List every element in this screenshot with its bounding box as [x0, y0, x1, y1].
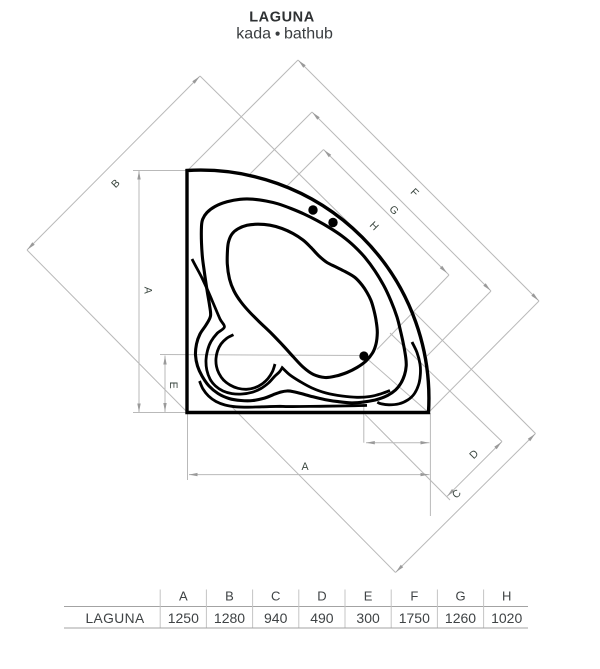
svg-text:H: H — [367, 219, 381, 233]
svg-text:E: E — [364, 588, 373, 603]
svg-text:F: F — [410, 588, 418, 603]
svg-text:D: D — [467, 447, 481, 461]
svg-text:1260: 1260 — [445, 610, 476, 626]
svg-text:C: C — [271, 588, 280, 603]
svg-text:LAGUNA: LAGUNA — [85, 611, 145, 626]
svg-text:B: B — [109, 177, 122, 190]
svg-text:1750: 1750 — [399, 610, 430, 626]
svg-text:940: 940 — [264, 610, 288, 626]
svg-text:300: 300 — [356, 610, 380, 626]
svg-text:G: G — [455, 588, 465, 603]
svg-text:1280: 1280 — [214, 610, 245, 626]
svg-text:F: F — [408, 186, 421, 199]
svg-text:H: H — [502, 588, 511, 603]
svg-text:D: D — [317, 588, 326, 603]
svg-text:1250: 1250 — [168, 610, 199, 626]
svg-text:A: A — [141, 287, 153, 295]
svg-text:bathub: bathub — [284, 26, 333, 43]
svg-text:490: 490 — [310, 610, 334, 626]
svg-text:A: A — [179, 588, 188, 603]
svg-text:kada: kada — [236, 26, 271, 43]
svg-text:B: B — [225, 588, 234, 603]
svg-text:E: E — [167, 382, 179, 389]
svg-text:LAGUNA: LAGUNA — [249, 10, 315, 26]
svg-text:1020: 1020 — [491, 610, 522, 626]
svg-text:A: A — [301, 461, 309, 473]
svg-text:G: G — [386, 203, 400, 217]
